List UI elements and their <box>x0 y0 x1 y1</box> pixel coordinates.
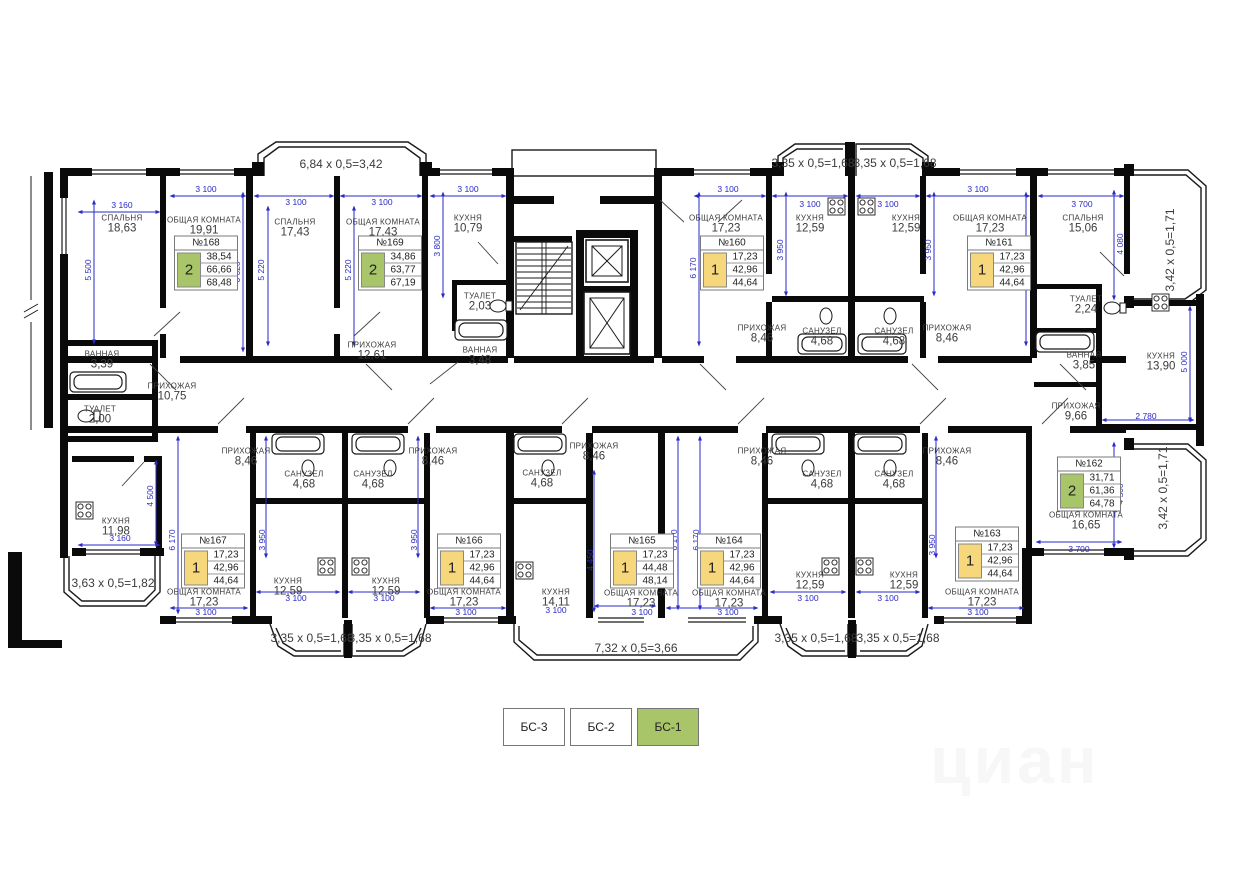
room-name: ОБЩАЯ КОМНАТА <box>167 588 241 597</box>
room-name: САНУЗЕЛ <box>874 327 913 336</box>
room-area: 18,63 <box>101 223 142 235</box>
room-name: СПАЛЬНЯ <box>274 218 315 227</box>
room-name: САНУЗЕЛ <box>284 470 323 479</box>
area-value: 17,23 <box>994 251 1030 264</box>
room-label: САНУЗЕЛ4,68 <box>353 470 392 491</box>
room-label: ТУАЛЕТ2,00 <box>84 405 116 426</box>
apartment-card: №167117,2342,9644,64 <box>181 534 245 589</box>
apartment-number: №164 <box>698 535 760 549</box>
room-count-badge: 2 <box>1060 474 1084 509</box>
floor-plan-page: СПАЛЬНЯ18,63ОБЩАЯ КОМНАТА19,91СПАЛЬНЯ17,… <box>0 0 1250 884</box>
room-label: ОБЩАЯ КОМНАТА17,23 <box>689 214 763 235</box>
room-name: САНУЗЕЛ <box>802 470 841 479</box>
dimension-label: 3 100 <box>797 593 818 603</box>
dimension-label: 3 700 <box>1071 199 1092 209</box>
room-area: 2,24 <box>1070 304 1102 316</box>
room-name: КУХНЯ <box>372 577 401 586</box>
area-value: 44,64 <box>208 575 244 588</box>
room-label: САНУЗЕЛ4,68 <box>802 470 841 491</box>
apartment-number: №163 <box>956 528 1018 542</box>
area-value: 61,36 <box>1084 485 1120 498</box>
area-value: 44,64 <box>982 568 1018 581</box>
dimension-label: 3 100 <box>545 605 566 615</box>
room-area: 4,68 <box>802 479 841 491</box>
room-name: ПРИХОЖАЯ <box>222 447 271 456</box>
room-name: КУХНЯ <box>796 571 825 580</box>
elevator-icon <box>584 240 630 354</box>
room-area: 10,79 <box>454 223 483 235</box>
room-area: 12,59 <box>890 580 919 592</box>
room-name: СПАЛЬНЯ <box>1062 214 1103 223</box>
room-area: 4,68 <box>522 478 561 490</box>
legend-item-бс-1[interactable]: БС-1 <box>637 708 699 746</box>
dimension-label: 6,84 х 0,5=3,42 <box>299 157 382 171</box>
room-area: 8,46 <box>923 333 972 345</box>
dimension-label: 3 950 <box>409 529 419 550</box>
area-value: 17,23 <box>208 549 244 562</box>
dimension-label: 3,35 х 0,5=1,68 <box>771 156 854 170</box>
room-name: СПАЛЬНЯ <box>101 214 142 223</box>
room-name: ПРИХОЖАЯ <box>738 447 787 456</box>
room-label: КУХНЯ12,59 <box>796 571 825 592</box>
dimension-label: 3 950 <box>257 529 267 550</box>
room-area: 9,66 <box>1052 411 1101 423</box>
room-name: ОБЩАЯ КОМНАТА <box>346 218 420 227</box>
room-name: ПРИХОЖАЯ <box>409 447 458 456</box>
room-area: 8,46 <box>570 451 619 463</box>
area-value: 66,66 <box>201 264 237 277</box>
dimension-label: 3 160 <box>111 200 132 210</box>
dimension-label: 5 500 <box>83 259 93 280</box>
room-area: 4,68 <box>802 336 841 348</box>
dimension-label: 5 000 <box>1179 351 1189 372</box>
apartment-number: №160 <box>701 237 763 251</box>
room-label: СПАЛЬНЯ17,43 <box>274 218 315 239</box>
dimension-label: 4 450 <box>585 549 595 570</box>
room-count-badge: 1 <box>184 551 208 586</box>
room-label: ПРИХОЖАЯ8,46 <box>738 447 787 468</box>
dimension-label: 3 100 <box>877 199 898 209</box>
room-area: 4,68 <box>353 479 392 491</box>
room-label: КУХНЯ12,59 <box>890 571 919 592</box>
room-area: 16,65 <box>1049 520 1123 532</box>
room-label: ПРИХОЖАЯ9,66 <box>1052 402 1101 423</box>
area-value: 42,96 <box>727 264 763 277</box>
dimension-label: 3 100 <box>195 184 216 194</box>
area-value: 44,48 <box>637 562 673 575</box>
room-label: ОБЩАЯ КОМНАТА16,65 <box>1049 511 1123 532</box>
area-value: 38,54 <box>201 251 237 264</box>
apartment-number: №162 <box>1058 458 1120 472</box>
dimension-label: 3,35 х 0,5=1,68 <box>856 631 939 645</box>
dimension-label: 3 800 <box>432 235 442 256</box>
area-value: 42,96 <box>724 562 760 575</box>
dimension-label: 6 170 <box>688 257 698 278</box>
room-count-badge: 1 <box>958 544 982 579</box>
room-count-badge: 2 <box>177 253 201 288</box>
dimension-label: 3 100 <box>195 607 216 617</box>
dimension-label: 3 100 <box>967 607 988 617</box>
room-label: ВАННАЯ3,48 <box>463 346 498 367</box>
room-label: САНУЗЕЛ4,68 <box>874 327 913 348</box>
room-count-badge: 1 <box>700 551 724 586</box>
room-name: САНУЗЕЛ <box>522 469 561 478</box>
dimension-label: 3 100 <box>373 593 394 603</box>
dimension-label: 3 160 <box>109 533 130 543</box>
room-area: 17,23 <box>689 223 763 235</box>
dimension-label: 3,63 х 0,5=1,82 <box>71 576 154 590</box>
room-label: ТУАЛЕТ2,24 <box>1070 295 1102 316</box>
area-value: 42,96 <box>994 264 1030 277</box>
dimension-label: 3 700 <box>1068 544 1089 554</box>
dimension-label: 5 220 <box>343 259 353 280</box>
room-label: КУХНЯ12,59 <box>892 214 921 235</box>
room-area: 4,68 <box>874 479 913 491</box>
apartment-number: №161 <box>968 237 1030 251</box>
dimension-label: 3 100 <box>717 184 738 194</box>
room-name: ОБЩАЯ КОМНАТА <box>945 588 1019 597</box>
room-label: ПРИХОЖАЯ8,46 <box>923 324 972 345</box>
dimension-label: 3 100 <box>371 197 392 207</box>
dimension-label: 4 500 <box>145 485 155 506</box>
room-label: САНУЗЕЛ4,68 <box>522 469 561 490</box>
dimension-label: 3 100 <box>455 607 476 617</box>
dimension-label: 3 950 <box>775 239 785 260</box>
dimension-label: 7,32 х 0,5=3,66 <box>594 641 677 655</box>
room-label: САНУЗЕЛ4,68 <box>802 327 841 348</box>
room-name: САНУЗЕЛ <box>874 470 913 479</box>
apartment-card: №164117,2342,9644,64 <box>697 534 761 589</box>
dimension-label: 3,42 х 0,5=1,71 <box>1156 446 1170 529</box>
room-label: ПРИХОЖАЯ8,46 <box>409 447 458 468</box>
room-name: САНУЗЕЛ <box>353 470 392 479</box>
room-name: ТУАЛЕТ <box>464 292 496 301</box>
room-name: КУХНЯ <box>102 517 130 526</box>
room-area: 3,48 <box>463 355 498 367</box>
room-name: ВАННАЯ <box>1067 351 1102 360</box>
dimension-label: 3,35 х 0,5=1,68 <box>270 631 353 645</box>
area-value: 17,23 <box>724 549 760 562</box>
area-value: 17,23 <box>982 542 1018 555</box>
room-area: 2,03 <box>464 301 496 313</box>
area-value: 17,23 <box>464 549 500 562</box>
area-value: 44,64 <box>464 575 500 588</box>
apartment-card: №163117,2342,9644,64 <box>955 527 1019 582</box>
dimension-label: 3 100 <box>877 593 898 603</box>
room-name: ОБЩАЯ КОМНАТА <box>604 589 678 598</box>
room-name: ПРИХОЖАЯ <box>348 341 397 350</box>
room-count-badge: 2 <box>361 253 385 288</box>
room-name: ПРИХОЖАЯ <box>570 442 619 451</box>
room-label: САНУЗЕЛ4,68 <box>284 470 323 491</box>
dimension-label: 5 220 <box>256 259 266 280</box>
room-area: 8,46 <box>409 456 458 468</box>
area-value: 34,86 <box>385 251 421 264</box>
room-label: САНУЗЕЛ4,68 <box>874 470 913 491</box>
room-label: ПРИХОЖАЯ10,75 <box>148 382 197 403</box>
dimension-label: 6 170 <box>167 529 177 550</box>
room-area: 12,59 <box>796 223 825 235</box>
room-name: ОБЩАЯ КОМНАТА <box>692 589 766 598</box>
dimension-label: 3,35 х 0,5=1,68 <box>774 631 857 645</box>
room-label: ПРИХОЖАЯ12,61 <box>348 341 397 362</box>
room-name: ВАННАЯ <box>463 346 498 355</box>
room-label: ОБЩАЯ КОМНАТА17,23 <box>167 588 241 609</box>
room-name: ПРИХОЖАЯ <box>923 447 972 456</box>
apartment-card: №162231,7161,3664,78 <box>1057 457 1121 512</box>
room-label: ВАННАЯ3,85 <box>1067 351 1102 372</box>
room-name: ВАННАЯ <box>85 350 120 359</box>
room-label: ОБЩАЯ КОМНАТА17,23 <box>945 588 1019 609</box>
room-name: ОБЩАЯ КОМНАТА <box>689 214 763 223</box>
room-label: ОБЩАЯ КОМНАТА17,23 <box>953 214 1027 235</box>
room-name: САНУЗЕЛ <box>802 327 841 336</box>
dimension-label: 3,35 х 0,5=1,68 <box>853 156 936 170</box>
room-area: 10,75 <box>148 391 197 403</box>
room-name: КУХНЯ <box>542 588 570 597</box>
apartment-number: №168 <box>175 237 237 251</box>
apartment-card: №160117,2342,9644,64 <box>700 236 764 291</box>
room-area: 8,46 <box>738 456 787 468</box>
room-label: ПРИХОЖАЯ8,46 <box>570 442 619 463</box>
area-value: 31,71 <box>1084 472 1120 485</box>
dimension-label: 3 100 <box>799 199 820 209</box>
room-label: ПРИХОЖАЯ8,46 <box>923 447 972 468</box>
area-value: 17,23 <box>637 549 673 562</box>
room-label: ТУАЛЕТ2,03 <box>464 292 496 313</box>
room-name: КУХНЯ <box>890 571 919 580</box>
legend-item-бс-2[interactable]: БС-2 <box>570 708 632 746</box>
room-name: ПРИХОЖАЯ <box>1052 402 1101 411</box>
room-label: КУХНЯ12,59 <box>796 214 825 235</box>
dimension-label: 4 080 <box>1115 233 1125 254</box>
room-name: КУХНЯ <box>796 214 825 223</box>
room-label: ПРИХОЖАЯ8,46 <box>222 447 271 468</box>
area-value: 42,96 <box>208 562 244 575</box>
area-value: 42,96 <box>982 555 1018 568</box>
room-count-badge: 1 <box>970 253 994 288</box>
room-label: ОБЩАЯ КОМНАТА17,23 <box>427 588 501 609</box>
apartment-card: №165117,2344,4848,14 <box>610 534 674 589</box>
room-name: ПРИХОЖАЯ <box>738 324 787 333</box>
room-area: 17,23 <box>953 223 1027 235</box>
room-name: КУХНЯ <box>1147 352 1176 361</box>
room-name: КУХНЯ <box>454 214 483 223</box>
room-area: 8,46 <box>738 333 787 345</box>
area-value: 42,96 <box>464 562 500 575</box>
area-value: 63,77 <box>385 264 421 277</box>
dimension-label: 3,35 х 0,5=1,68 <box>348 631 431 645</box>
apartment-card: №166117,2342,9644,64 <box>437 534 501 589</box>
room-name: ПРИХОЖАЯ <box>148 382 197 391</box>
area-value: 48,14 <box>637 575 673 588</box>
dimension-label: 3 100 <box>717 607 738 617</box>
room-name: ОБЩАЯ КОМНАТА <box>953 214 1027 223</box>
area-value: 44,64 <box>727 277 763 290</box>
apartment-number: №169 <box>359 237 421 251</box>
dimension-label: 2 780 <box>1135 411 1156 421</box>
room-count-badge: 1 <box>613 551 637 586</box>
dimension-label: 3 100 <box>285 197 306 207</box>
room-name: ТУАЛЕТ <box>1070 295 1102 304</box>
room-area: 8,46 <box>923 456 972 468</box>
room-area: 13,90 <box>1147 361 1176 373</box>
dimension-label: 3 100 <box>457 184 478 194</box>
room-label: СПАЛЬНЯ18,63 <box>101 214 142 235</box>
room-label: ВАННАЯ3,39 <box>85 350 120 371</box>
room-name: ТУАЛЕТ <box>84 405 116 414</box>
area-value: 44,64 <box>724 575 760 588</box>
area-value: 68,48 <box>201 277 237 290</box>
apartment-number: №165 <box>611 535 673 549</box>
block-section-legend: БС-3БС-2БС-1 <box>503 708 699 746</box>
room-area: 12,61 <box>348 350 397 362</box>
wall-break-symbol <box>24 176 38 430</box>
room-count-badge: 1 <box>703 253 727 288</box>
room-area: 15,06 <box>1062 223 1103 235</box>
room-label: КУХНЯ13,90 <box>1147 352 1176 373</box>
area-value: 64,78 <box>1084 498 1120 511</box>
dimension-label: 3 100 <box>967 184 988 194</box>
legend-item-бс-3[interactable]: БС-3 <box>503 708 565 746</box>
room-label: СПАЛЬНЯ15,06 <box>1062 214 1103 235</box>
room-area: 12,59 <box>892 223 921 235</box>
room-count-badge: 1 <box>440 551 464 586</box>
dimension-label: 3 950 <box>927 534 937 555</box>
room-label: КУХНЯ10,79 <box>454 214 483 235</box>
apartment-number: №166 <box>438 535 500 549</box>
dimension-label: 3 100 <box>631 607 652 617</box>
room-area: 2,00 <box>84 414 116 426</box>
apartment-card: №169234,8663,7767,19 <box>358 236 422 291</box>
room-label: ОБЩАЯ КОМНАТА19,91 <box>167 216 241 237</box>
dimension-label: 3,42 х 0,5=1,71 <box>1163 208 1177 291</box>
watermark: циан <box>930 722 1100 798</box>
room-area: 4,68 <box>284 479 323 491</box>
area-value: 44,64 <box>994 277 1030 290</box>
room-area: 12,59 <box>796 580 825 592</box>
area-value: 67,19 <box>385 277 421 290</box>
dimension-label: 3 950 <box>923 239 933 260</box>
room-name: ОБЩАЯ КОМНАТА <box>1049 511 1123 520</box>
room-area: 4,68 <box>874 336 913 348</box>
room-name: КУХНЯ <box>892 214 921 223</box>
room-area: 3,39 <box>85 359 120 371</box>
dimension-label: 3 100 <box>285 593 306 603</box>
room-area: 8,46 <box>222 456 271 468</box>
room-name: ОБЩАЯ КОМНАТА <box>167 216 241 225</box>
apartment-card: №161117,2342,9644,64 <box>967 236 1031 291</box>
apartment-card: №168238,5466,6668,48 <box>174 236 238 291</box>
room-area: 3,85 <box>1067 360 1102 372</box>
room-label: ПРИХОЖАЯ8,46 <box>738 324 787 345</box>
stairs-icon <box>516 242 572 314</box>
area-value: 17,23 <box>727 251 763 264</box>
apartment-number: №167 <box>182 535 244 549</box>
room-name: ОБЩАЯ КОМНАТА <box>427 588 501 597</box>
room-name: ПРИХОЖАЯ <box>923 324 972 333</box>
room-name: КУХНЯ <box>274 577 303 586</box>
room-area: 17,43 <box>274 227 315 239</box>
